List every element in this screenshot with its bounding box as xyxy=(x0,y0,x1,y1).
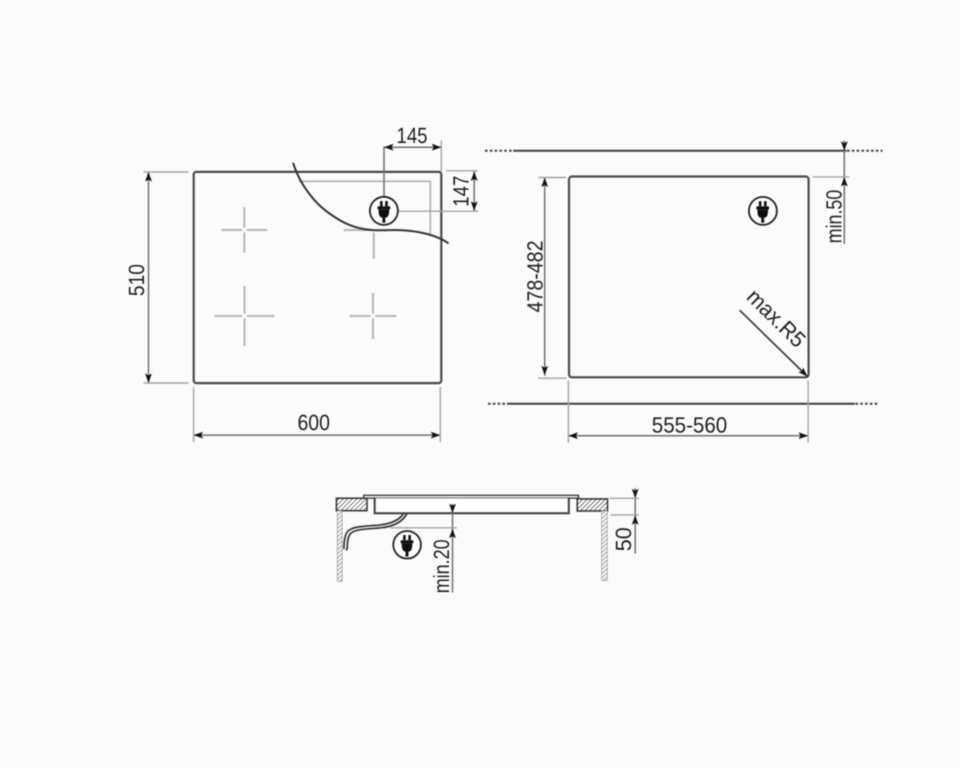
svg-text:147: 147 xyxy=(448,176,473,207)
svg-text:min.50: min.50 xyxy=(822,190,847,244)
svg-text:145: 145 xyxy=(397,123,428,148)
svg-text:50: 50 xyxy=(611,527,636,551)
svg-text:510: 510 xyxy=(124,264,149,296)
svg-text:600: 600 xyxy=(297,410,330,435)
svg-text:min.20: min.20 xyxy=(429,539,454,593)
svg-text:478-482: 478-482 xyxy=(523,241,548,313)
svg-text:555-560: 555-560 xyxy=(652,413,728,438)
